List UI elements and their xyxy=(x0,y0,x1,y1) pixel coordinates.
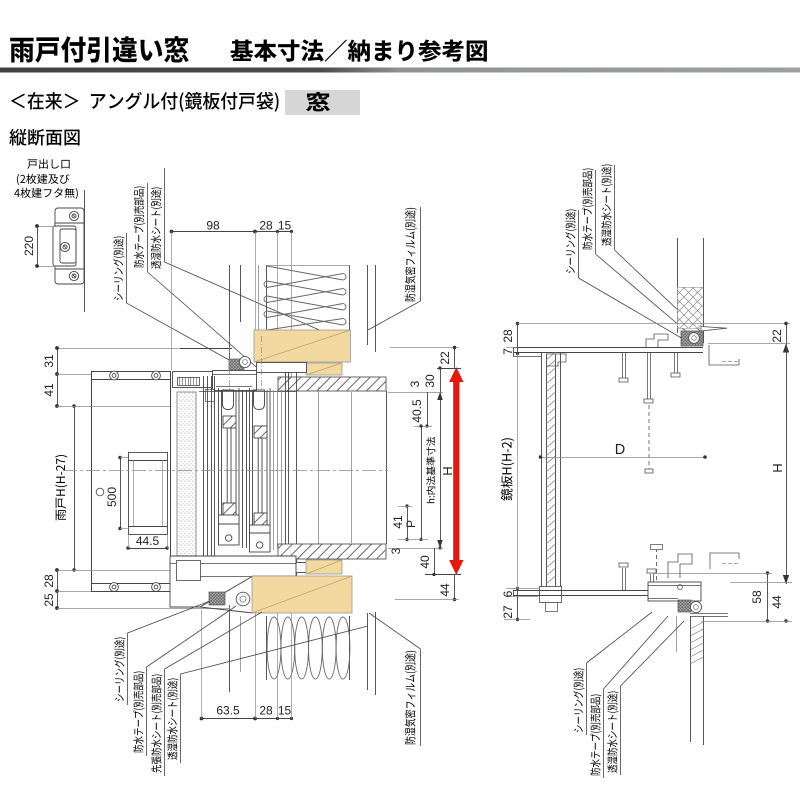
svg-text:40.5: 40.5 xyxy=(410,399,424,423)
svg-text:25: 25 xyxy=(42,593,56,607)
svg-text:41: 41 xyxy=(42,383,56,397)
svg-text:40: 40 xyxy=(418,555,432,569)
svg-text:6: 6 xyxy=(501,590,515,597)
svg-text:3: 3 xyxy=(408,380,422,387)
svg-text:H: H xyxy=(770,463,785,472)
svg-text:28: 28 xyxy=(259,704,273,718)
svg-text:22: 22 xyxy=(770,329,784,343)
svg-text:3: 3 xyxy=(389,547,403,554)
svg-text:22: 22 xyxy=(438,351,452,365)
svg-text:58: 58 xyxy=(750,590,764,604)
svg-text:41: 41 xyxy=(391,515,405,529)
svg-text:D: D xyxy=(615,442,625,458)
svg-text:7: 7 xyxy=(501,348,515,355)
svg-text:44.5: 44.5 xyxy=(136,534,160,548)
svg-text:220: 220 xyxy=(22,236,36,256)
svg-text:500: 500 xyxy=(105,487,119,507)
svg-text:63.5: 63.5 xyxy=(216,704,240,718)
svg-text:44: 44 xyxy=(770,595,784,609)
svg-text:28: 28 xyxy=(501,329,515,343)
svg-text:15: 15 xyxy=(278,219,292,233)
svg-text:31: 31 xyxy=(42,354,56,368)
svg-text:P: P xyxy=(404,520,418,528)
svg-text:30: 30 xyxy=(423,374,437,388)
svg-text:44: 44 xyxy=(438,583,452,597)
svg-text:H: H xyxy=(440,466,455,475)
svg-text:28: 28 xyxy=(259,219,273,233)
svg-text:15: 15 xyxy=(278,704,292,718)
svg-text:28: 28 xyxy=(42,574,56,588)
svg-text:98: 98 xyxy=(206,219,220,233)
svg-text:27: 27 xyxy=(501,605,515,619)
